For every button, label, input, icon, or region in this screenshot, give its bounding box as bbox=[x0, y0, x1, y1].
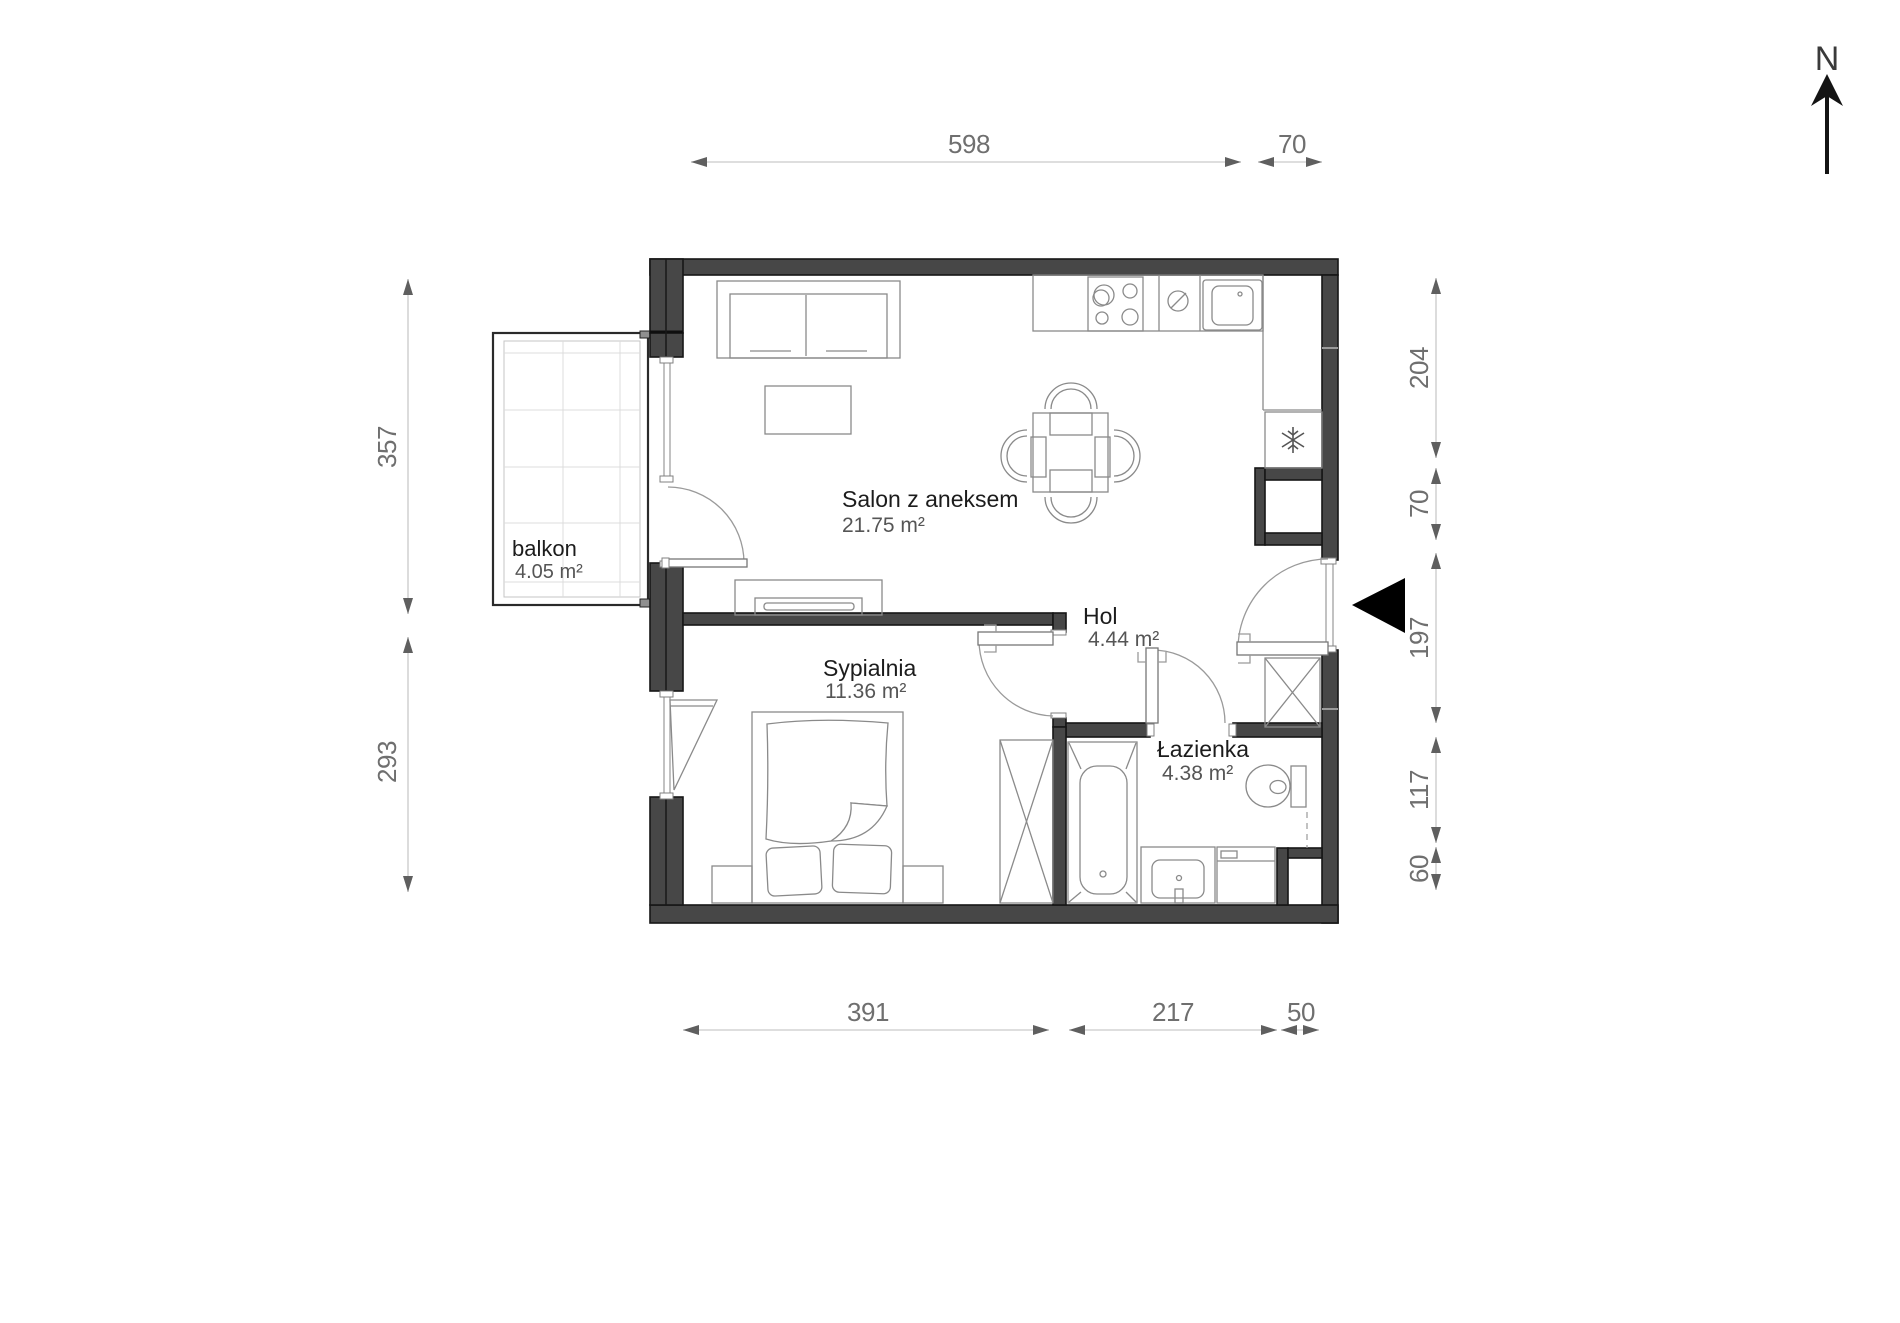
wall-bathroom-top-right bbox=[1233, 723, 1322, 737]
dim-right-197: 197 bbox=[1404, 617, 1434, 659]
cooktop bbox=[1088, 277, 1143, 331]
room-area-salon: 21.75 m² bbox=[842, 514, 925, 537]
room-label-salon: Salon z aneksem bbox=[842, 486, 1018, 512]
hol-furniture bbox=[1265, 658, 1320, 727]
wall-bedroom-hol-post-top bbox=[1053, 613, 1066, 632]
room-label-sypialnia: Sypialnia bbox=[823, 655, 917, 681]
bedroom-furniture bbox=[670, 700, 1053, 903]
room-label-balkon: balkon bbox=[512, 536, 577, 561]
pillow bbox=[832, 844, 892, 894]
balcony-door bbox=[662, 487, 747, 568]
snowflake-icon bbox=[1282, 427, 1304, 453]
room-area-sypialnia: 11.36 m² bbox=[825, 680, 906, 703]
wall-bedroom-bathroom bbox=[1053, 727, 1066, 905]
bathroom-door bbox=[1138, 648, 1236, 736]
nightstand bbox=[712, 866, 752, 903]
entrance-door-leaf bbox=[1237, 642, 1328, 655]
wardrobe-bedroom bbox=[1000, 740, 1053, 903]
dining-table bbox=[1033, 413, 1108, 492]
dimension-right: 204 70 197 117 60 bbox=[1404, 278, 1441, 890]
wardrobe-hol bbox=[1265, 658, 1320, 727]
wall-bedroom-hol-post-bottom bbox=[1053, 718, 1066, 727]
wall-bathroom-top-left bbox=[1066, 723, 1150, 737]
room-label-hol: Hol bbox=[1083, 603, 1118, 629]
bedroom-door bbox=[978, 625, 1066, 718]
wall-bottom bbox=[650, 905, 1338, 923]
balcony-railing-end bbox=[640, 331, 650, 338]
dim-right-70: 70 bbox=[1404, 490, 1434, 518]
fridge bbox=[1265, 412, 1322, 468]
dimension-left: 357 293 bbox=[372, 279, 413, 892]
toilet bbox=[1246, 765, 1306, 807]
wall-shaft-left bbox=[1255, 468, 1265, 545]
wardrobe-window-side bbox=[670, 700, 717, 790]
kitchen-counter bbox=[1033, 275, 1263, 331]
bedroom-door-leaf bbox=[978, 632, 1053, 645]
dim-top-598: 598 bbox=[948, 129, 990, 159]
wall-duct-top bbox=[1288, 848, 1322, 858]
dining-table-set bbox=[1001, 383, 1140, 523]
kitchen-sink bbox=[1203, 280, 1262, 330]
floor-plan-canvas: N 598 70 391 217 50 357 293 bbox=[0, 0, 1900, 1323]
wall-top bbox=[650, 259, 1338, 275]
dim-bottom-391: 391 bbox=[847, 997, 889, 1027]
wall-duct-stub bbox=[1277, 848, 1288, 905]
coffee-table bbox=[765, 386, 851, 434]
wall-right-lower bbox=[1322, 650, 1338, 923]
tv-cabinet bbox=[735, 580, 882, 615]
dim-left-357: 357 bbox=[372, 426, 402, 468]
north-label: N bbox=[1815, 40, 1840, 78]
dim-bottom-50: 50 bbox=[1287, 997, 1315, 1027]
wall-shaft-bottom bbox=[1265, 533, 1322, 545]
wall-right-upper bbox=[1322, 275, 1338, 560]
entrance-frame bbox=[1321, 558, 1336, 652]
washing-machine bbox=[1217, 847, 1275, 903]
bathtub bbox=[1068, 742, 1137, 903]
dim-left-293: 293 bbox=[372, 741, 402, 783]
entrance-marker-icon bbox=[1352, 578, 1405, 633]
dim-right-117: 117 bbox=[1404, 770, 1434, 810]
bathroom-door-leaf bbox=[1146, 648, 1158, 723]
dim-bottom-217: 217 bbox=[1152, 997, 1194, 1027]
pillow bbox=[766, 846, 822, 897]
bed bbox=[752, 712, 903, 903]
room-area-lazienka: 4.38 m² bbox=[1162, 762, 1233, 785]
wall-shaft-top bbox=[1265, 468, 1322, 480]
dimension-bottom: 391 217 50 bbox=[683, 997, 1319, 1035]
dim-top-70: 70 bbox=[1278, 129, 1306, 159]
dimension-top: 598 70 bbox=[691, 129, 1322, 167]
room-area-hol: 4.44 m² bbox=[1088, 628, 1159, 651]
doors bbox=[662, 487, 1405, 736]
sofa bbox=[717, 281, 900, 358]
dim-right-60: 60 bbox=[1404, 855, 1434, 883]
floor-plan: N 598 70 391 217 50 357 293 bbox=[0, 0, 1900, 1323]
nightstand bbox=[903, 866, 943, 903]
balcony-railing-end bbox=[640, 599, 650, 607]
balcony-door-leaf bbox=[668, 559, 747, 567]
balcony-window bbox=[660, 357, 673, 567]
dim-right-204: 204 bbox=[1404, 347, 1434, 389]
room-area-balkon: 4.05 m² bbox=[515, 561, 583, 583]
bathroom-sink bbox=[1141, 847, 1215, 903]
north-arrow: N bbox=[1811, 40, 1843, 174]
entrance-door bbox=[1237, 559, 1328, 663]
balcony: balkon 4.05 m² bbox=[493, 331, 650, 607]
hob-symbol bbox=[1168, 291, 1188, 311]
room-label-lazienka: Łazienka bbox=[1157, 736, 1249, 762]
